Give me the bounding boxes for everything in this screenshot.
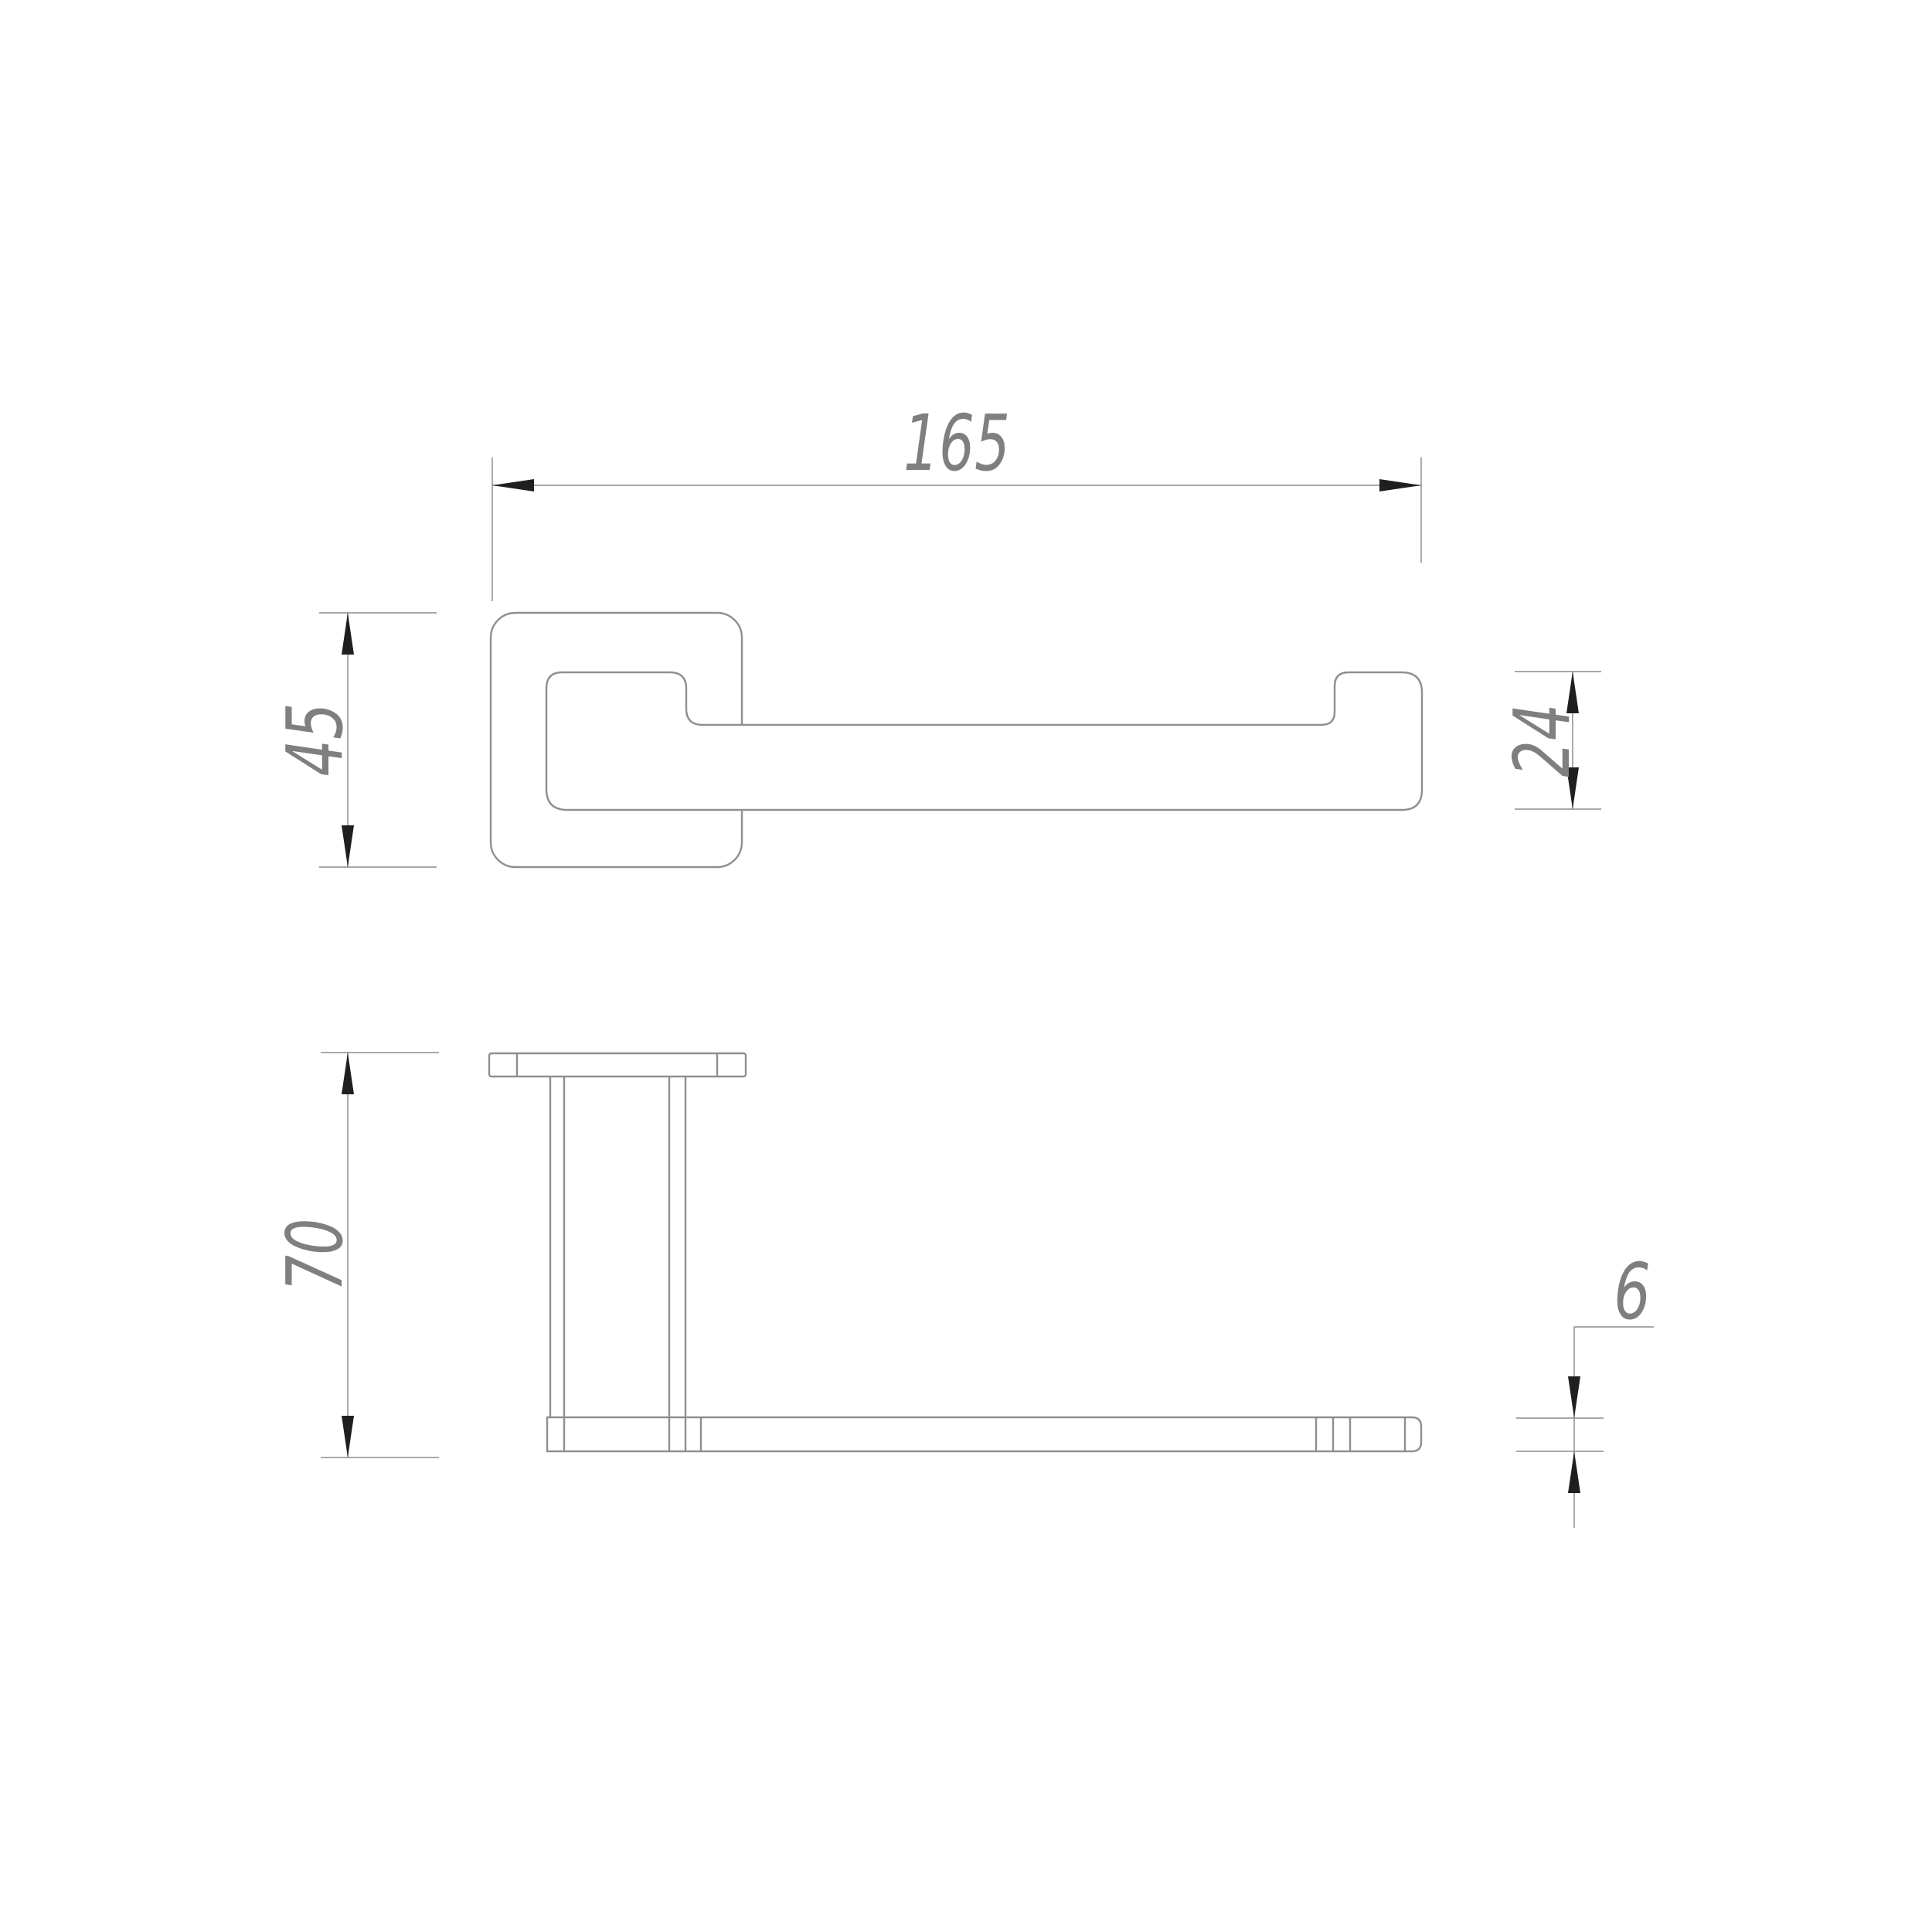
arrow-up-icon [342, 613, 354, 655]
dimension-arm-end-height: 24 [1497, 672, 1601, 809]
arrow-down-icon [1568, 1376, 1580, 1418]
front-view-plate-bar [489, 1053, 746, 1077]
arrow-up-icon [1568, 1451, 1580, 1493]
dimension-bar-thickness: 6 [1516, 1247, 1654, 1528]
dim-drop-height-label: 70 [270, 1219, 360, 1292]
arrow-left-icon [492, 479, 534, 492]
drawing-page: 165 45 24 [0, 0, 1932, 1932]
arrow-down-icon [342, 825, 354, 867]
arrow-right-icon [1379, 479, 1421, 492]
top-view [491, 613, 1422, 867]
technical-drawing-canvas: 165 45 24 [0, 0, 1932, 1932]
arrow-up-icon [342, 1053, 354, 1094]
dim-bar-thickness-label: 6 [1614, 1247, 1651, 1337]
dimension-plate-size: 45 [270, 613, 437, 867]
front-view-bottom-bar [547, 1417, 1421, 1451]
dimension-total-length: 165 [492, 398, 1421, 601]
arrow-down-icon [342, 1416, 354, 1458]
front-view [489, 1053, 1421, 1451]
dim-plate-size-label: 45 [270, 703, 360, 777]
dim-total-length-label: 165 [903, 398, 1010, 488]
dim-arm-end-height-label: 24 [1497, 704, 1587, 777]
dimension-drop-height: 70 [270, 1053, 439, 1458]
top-view-arm-outline [546, 672, 1422, 810]
